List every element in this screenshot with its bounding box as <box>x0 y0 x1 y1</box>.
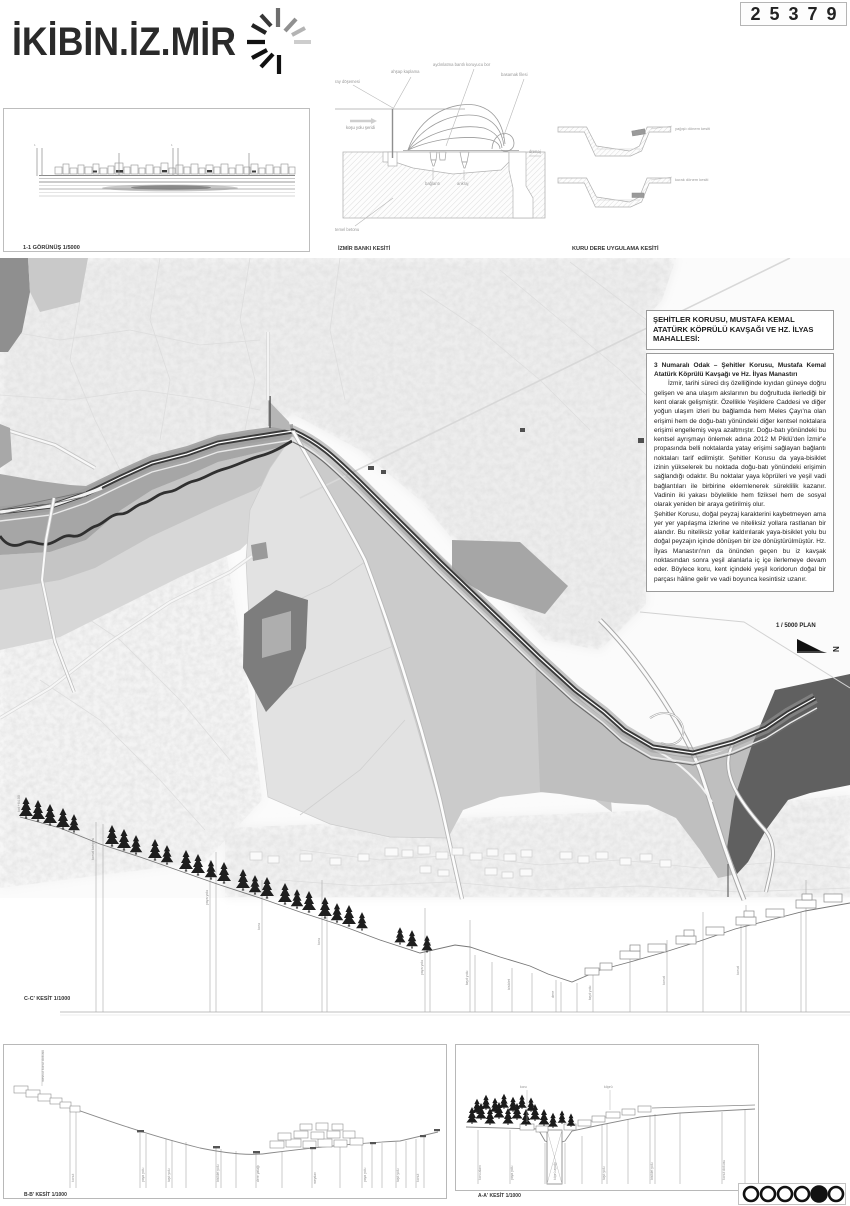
svg-text:taşıt yolu: taşıt yolu <box>396 1168 400 1182</box>
svg-text:taşıt yolu: taşıt yolu <box>588 986 592 1000</box>
svg-text:yağışlı dönem kesiti: yağışlı dönem kesiti <box>675 126 710 131</box>
svg-text:1-1 GÖRÜNÜŞ 1/5000: 1-1 GÖRÜNÜŞ 1/5000 <box>23 244 80 251</box>
svg-text:İZMİR BANKI KESİTİ: İZMİR BANKI KESİTİ <box>338 245 391 252</box>
svg-text:A-A' KESİT 1/1000: A-A' KESİT 1/1000 <box>478 1192 521 1199</box>
svg-text:koşu yolu şeridi: koşu yolu şeridi <box>346 125 375 130</box>
svg-text:konut: konut <box>736 966 740 975</box>
svg-text:meydan: meydan <box>313 1172 317 1184</box>
svg-text:ankraj: ankraj <box>457 181 468 186</box>
svg-text:koru: koru <box>317 938 321 945</box>
svg-text:köprü: köprü <box>604 1085 613 1089</box>
svg-text:basamak filesi: basamak filesi <box>501 72 528 77</box>
svg-text:konut dokusu: konut dokusu <box>722 1160 726 1180</box>
svg-text:yaya yolu: yaya yolu <box>363 1168 367 1182</box>
svg-text:yaya yolu: yaya yolu <box>510 1166 514 1180</box>
svg-text:drenaj: drenaj <box>529 149 541 154</box>
svg-text:N: N <box>832 646 841 652</box>
svg-text:mevcut konut dokusu: mevcut konut dokusu <box>41 1050 45 1082</box>
svg-text:yaya yolu: yaya yolu <box>205 890 209 905</box>
svg-text:dere yatağı: dere yatağı <box>256 1165 260 1182</box>
svg-text:aydınlatma bantlı koruyucu bor: aydınlatma bantlı koruyucu bor <box>433 62 491 67</box>
svg-text:konut bahçesi: konut bahçesi <box>91 838 95 860</box>
svg-text:taşıt yolu: taşıt yolu <box>602 1166 606 1180</box>
svg-text:dere: dere <box>551 991 555 998</box>
svg-text:taşıt yolu: taşıt yolu <box>465 971 469 985</box>
svg-text:yaya yolu: yaya yolu <box>420 960 424 975</box>
svg-text:temel betonu: temel betonu <box>335 227 360 232</box>
svg-text:konut: konut <box>662 976 666 985</box>
svg-text:kurak dönem kesiti: kurak dönem kesiti <box>675 177 708 182</box>
svg-text:KURU DERE UYGULAMA KESİTİ: KURU DERE UYGULAMA KESİTİ <box>572 245 659 252</box>
svg-text:ray döşemesi: ray döşemesi <box>335 79 360 84</box>
svg-text:kot +64.00: kot +64.00 <box>17 795 21 812</box>
svg-text:konut: konut <box>71 1174 75 1182</box>
svg-text:koru alanı: koru alanı <box>478 1165 482 1180</box>
svg-text:taşıt yolu: taşıt yolu <box>167 1168 171 1182</box>
svg-text:yaya yolu: yaya yolu <box>141 1168 145 1182</box>
svg-text:C-C' KESİT 1/1000: C-C' KESİT 1/1000 <box>24 995 70 1002</box>
svg-text:ahşap kaplama: ahşap kaplama <box>391 69 420 74</box>
svg-text:bisiklet yolu: bisiklet yolu <box>216 1164 220 1182</box>
svg-text:B-B' KESİT 1/1000: B-B' KESİT 1/1000 <box>24 1191 67 1198</box>
svg-text:bağlantı: bağlantı <box>425 181 440 186</box>
svg-text:koru: koru <box>520 1085 527 1089</box>
svg-text:bisiklet yolu: bisiklet yolu <box>650 1162 654 1180</box>
svg-text:konut: konut <box>416 1174 420 1182</box>
svg-text:koru: koru <box>257 923 261 930</box>
svg-text:köprü ayağı: köprü ayağı <box>553 1162 557 1180</box>
svg-text:bisiklet: bisiklet <box>507 979 511 990</box>
